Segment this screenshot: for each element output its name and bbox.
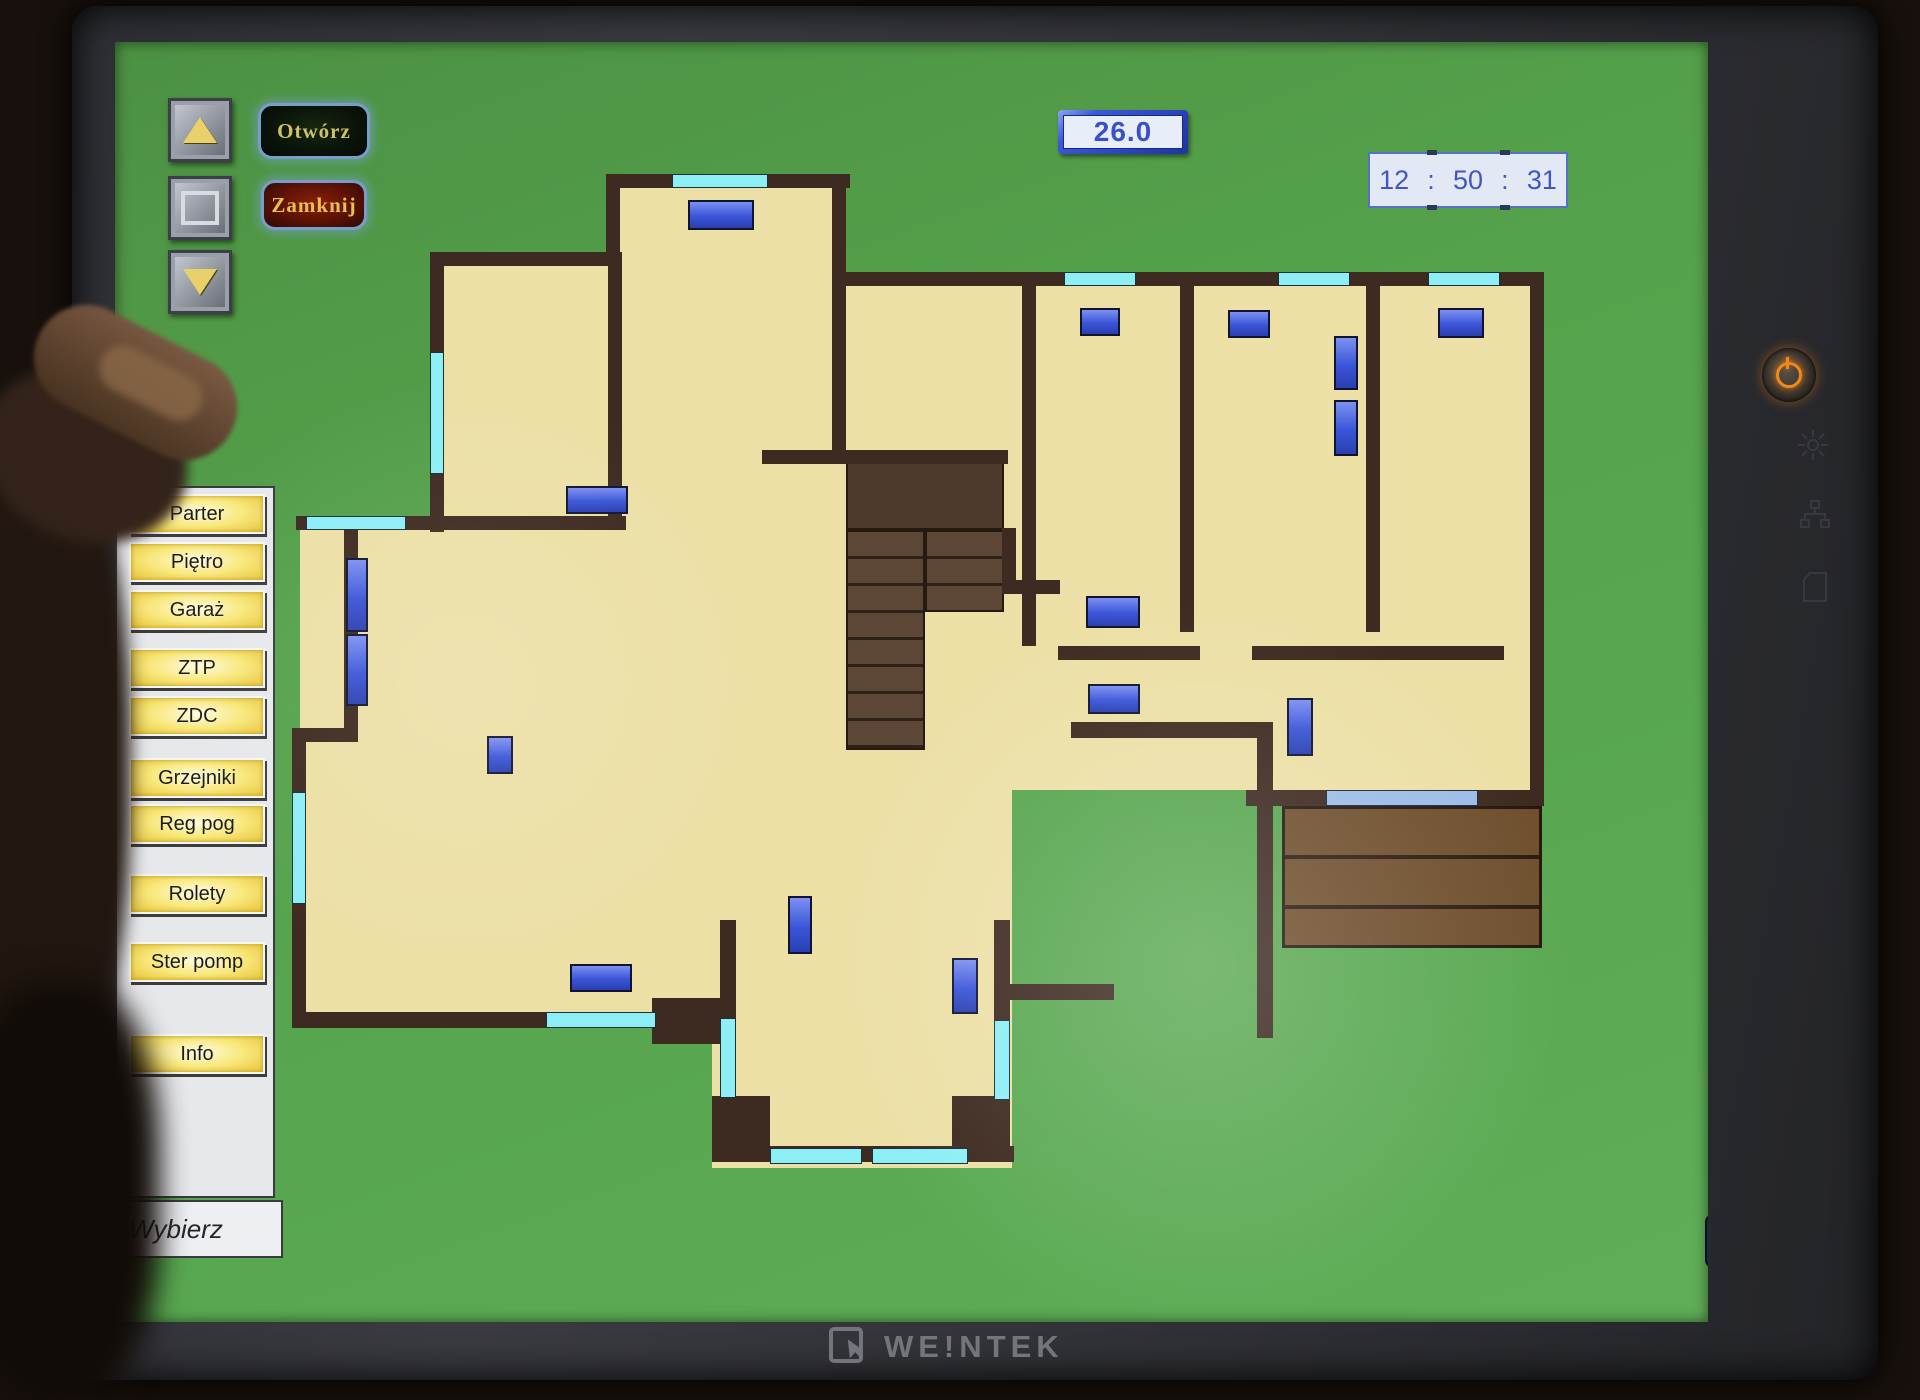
- wall: [1530, 646, 1544, 798]
- wall: [1008, 984, 1114, 1000]
- radiator: [1334, 400, 1358, 456]
- sidebar-button-zdc[interactable]: ZDC: [129, 696, 265, 736]
- window: [720, 1018, 736, 1098]
- down-arrow-button[interactable]: [168, 250, 232, 314]
- wall: [1071, 722, 1273, 738]
- clock: 12 : 50 : 31: [1368, 152, 1568, 208]
- window: [1428, 272, 1500, 286]
- sidebar-button-grzejniki[interactable]: Grzejniki: [129, 758, 265, 798]
- clock-minutes: 50: [1453, 165, 1483, 196]
- wall: [1366, 286, 1380, 632]
- radiator: [487, 736, 513, 774]
- sidebar-button-pi-tro[interactable]: Piętro: [129, 542, 265, 582]
- window: [770, 1148, 862, 1164]
- clock-tick: [1427, 205, 1437, 210]
- sidebar-button-ster-pomp[interactable]: Ster pomp: [129, 942, 265, 982]
- sidebar-menu: ParterPiętroGarażZTPZDCGrzejnikiReg pogR…: [115, 486, 275, 1198]
- radiator: [788, 896, 812, 954]
- window: [546, 1012, 656, 1028]
- window: [1064, 272, 1136, 286]
- sidebar-button-gara-[interactable]: Garaż: [129, 590, 265, 630]
- wall: [1252, 646, 1504, 660]
- hmi-screen: 27.025.027.025.023.024.125.024.320.025.5…: [115, 42, 1708, 1322]
- stair-flight-left: [846, 530, 925, 750]
- radiator: [1438, 308, 1484, 338]
- radiator: [1080, 308, 1120, 336]
- sidebar-button-rolety[interactable]: Rolety: [129, 874, 265, 914]
- radiator: [688, 200, 754, 230]
- wall: [762, 450, 1008, 464]
- clock-sep2: :: [1501, 165, 1509, 196]
- room-floor: [1296, 568, 1544, 804]
- stop-button[interactable]: [168, 176, 232, 240]
- wall: [1530, 272, 1544, 646]
- power-icon: [1776, 362, 1802, 388]
- down-arrow-icon: [183, 269, 217, 295]
- wall: [608, 252, 622, 518]
- wall: [994, 920, 1010, 1022]
- wall: [1058, 646, 1200, 660]
- radiator: [346, 634, 368, 706]
- radiator: [566, 486, 628, 514]
- clock-seconds: 31: [1527, 165, 1557, 196]
- wall: [430, 252, 622, 266]
- up-arrow-icon: [183, 117, 217, 143]
- radiator: [570, 964, 632, 992]
- select-label: Wybierz: [115, 1200, 283, 1258]
- up-arrow-button[interactable]: [168, 98, 232, 162]
- wall: [832, 174, 846, 464]
- sliding-door: [1326, 790, 1478, 806]
- wall: [1180, 286, 1194, 632]
- wall: [652, 998, 724, 1044]
- outside-temp-value: 26.0: [1063, 115, 1183, 149]
- sidebar-button-ztp[interactable]: ZTP: [129, 648, 265, 688]
- window: [306, 516, 406, 530]
- clock-tick: [1500, 205, 1510, 210]
- room-floor: [292, 728, 414, 1028]
- outside-temp-display[interactable]: 26.0: [1058, 110, 1188, 154]
- clock-tick: [1427, 150, 1437, 155]
- brand-logo-text: WE!NTEK: [884, 1329, 1064, 1365]
- wall: [1478, 790, 1544, 806]
- power-button[interactable]: [1762, 348, 1816, 402]
- wall: [1246, 790, 1330, 806]
- wall: [952, 1096, 1010, 1154]
- sidebar-button-info[interactable]: Info: [129, 1034, 265, 1074]
- window: [1278, 272, 1350, 286]
- window: [872, 1148, 968, 1164]
- hmi-panel-photo: 27.025.027.025.023.024.125.024.320.025.5…: [0, 0, 1920, 1380]
- stair-landing: [846, 462, 1004, 530]
- radiator: [346, 558, 368, 632]
- stop-icon: [181, 191, 219, 225]
- radiator: [952, 958, 978, 1014]
- back-button[interactable]: ←: [1705, 1214, 1708, 1268]
- brand-logo: WE!NTEK: [828, 1326, 1064, 1368]
- radiator: [1088, 684, 1140, 714]
- window: [292, 792, 306, 904]
- touch-hand-icon: [828, 1326, 870, 1368]
- network-icon: [1798, 500, 1832, 530]
- sd-card-icon: [1802, 572, 1828, 602]
- wall: [1257, 738, 1273, 1038]
- clock-hours: 12: [1379, 165, 1409, 196]
- sidebar-button-reg-pog[interactable]: Reg pog: [129, 804, 265, 844]
- window: [994, 1020, 1010, 1100]
- window: [672, 174, 768, 188]
- wall: [292, 1012, 548, 1028]
- clock-tick: [1500, 150, 1510, 155]
- brightness-icon: [1796, 428, 1830, 462]
- stair-flight-right: [925, 530, 1004, 612]
- radiator: [1334, 336, 1358, 390]
- close-button[interactable]: Zamknij: [261, 180, 367, 230]
- open-button[interactable]: Otwórz: [258, 103, 370, 159]
- sidebar-button-parter[interactable]: Parter: [129, 494, 265, 534]
- terrace-deck: [1282, 806, 1542, 948]
- radiator: [1287, 698, 1313, 756]
- window: [430, 352, 444, 474]
- radiator: [1086, 596, 1140, 628]
- wall: [1002, 580, 1060, 594]
- wall: [720, 920, 736, 1020]
- radiator: [1228, 310, 1270, 338]
- clock-sep: :: [1427, 165, 1435, 196]
